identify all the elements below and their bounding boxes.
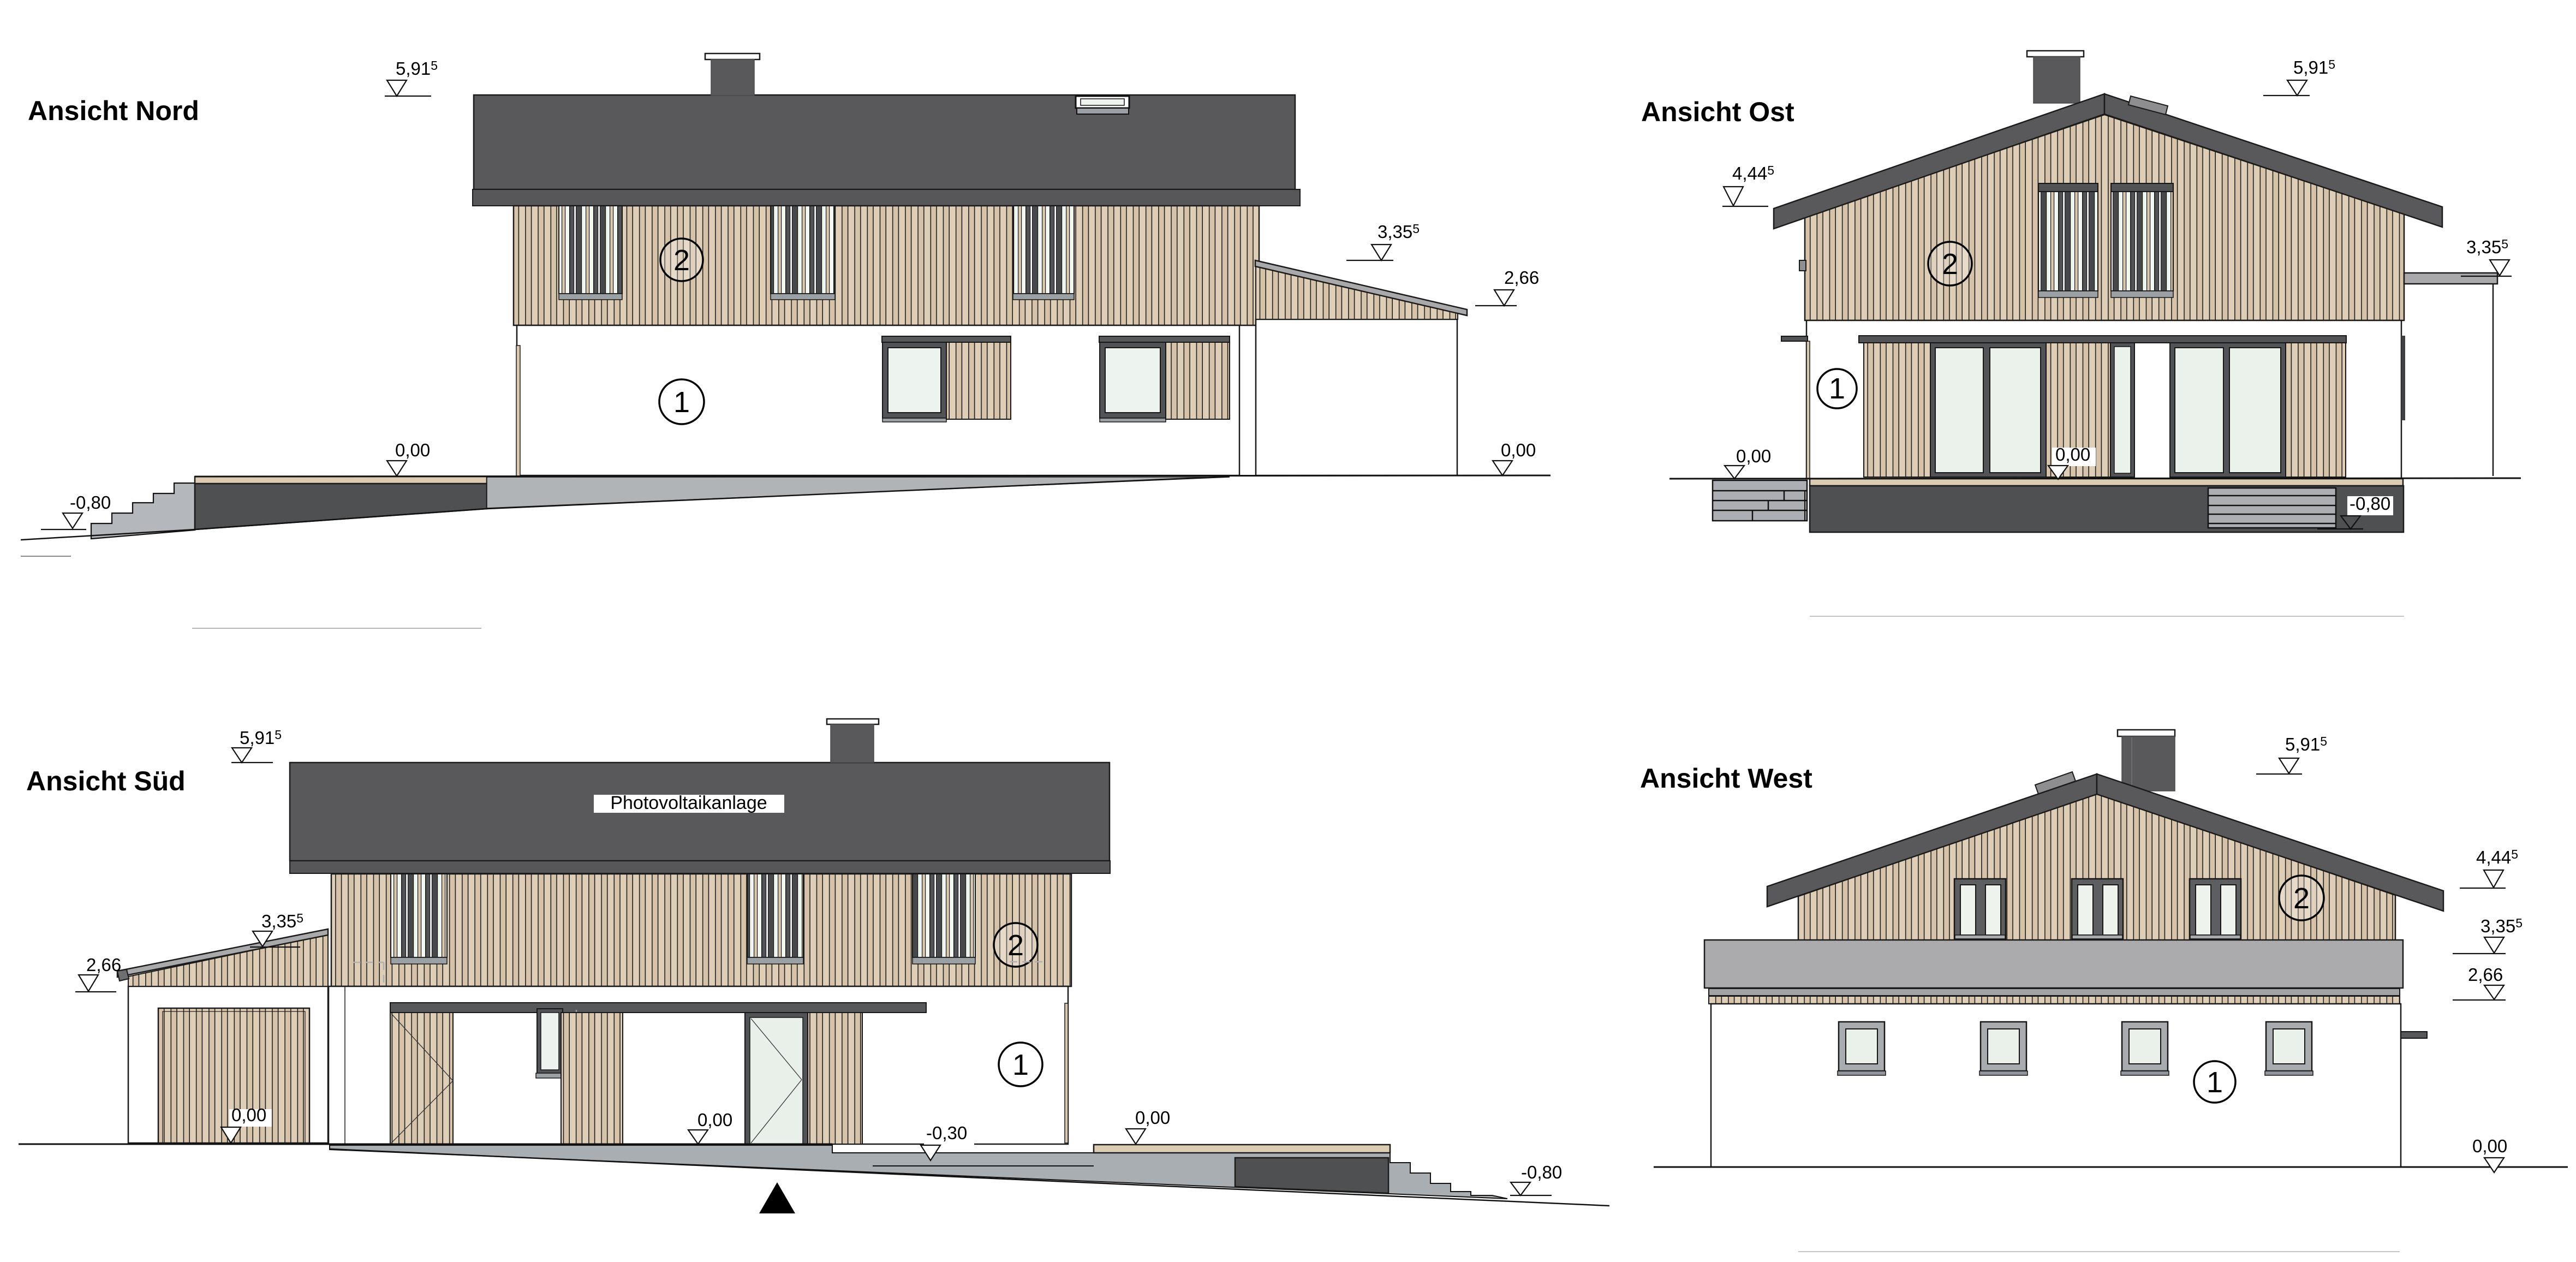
svg-text:2: 2	[1942, 248, 1958, 281]
svg-text:2,66: 2,66	[2468, 965, 2503, 985]
svg-text:0,00: 0,00	[2055, 444, 2090, 465]
svg-text:2: 2	[2293, 882, 2310, 915]
svg-text:1: 1	[673, 386, 690, 419]
svg-text:0,00: 0,00	[697, 1110, 732, 1130]
svg-text:-0,80: -0,80	[1521, 1162, 1562, 1182]
svg-text:0,00: 0,00	[395, 440, 430, 460]
svg-text:0,00: 0,00	[1736, 446, 1771, 466]
svg-text:1: 1	[1829, 372, 1845, 405]
svg-text:Ansicht Süd: Ansicht Süd	[26, 766, 186, 796]
svg-text:0,00: 0,00	[1501, 440, 1536, 460]
svg-text:Ansicht Ost: Ansicht Ost	[1641, 97, 1794, 127]
svg-text:Ansicht West: Ansicht West	[1640, 763, 1812, 794]
svg-text:1: 1	[1012, 1049, 1029, 1081]
svg-text:-0,80: -0,80	[70, 492, 111, 513]
svg-text:2: 2	[1007, 929, 1024, 962]
svg-text:-0,30: -0,30	[926, 1123, 967, 1143]
svg-text:2: 2	[673, 244, 690, 277]
svg-text:1: 1	[2207, 1066, 2223, 1099]
svg-text:2,66: 2,66	[86, 955, 121, 975]
svg-text:Ansicht Nord: Ansicht Nord	[28, 96, 199, 126]
svg-text:Photovoltaikanlage: Photovoltaikanlage	[610, 793, 767, 813]
svg-text:2,66: 2,66	[1504, 267, 1539, 288]
svg-text:0,00: 0,00	[231, 1105, 266, 1125]
svg-text:0,00: 0,00	[2472, 1136, 2507, 1156]
svg-text:0,00: 0,00	[1135, 1108, 1170, 1128]
svg-text:-0,80: -0,80	[2350, 493, 2390, 514]
